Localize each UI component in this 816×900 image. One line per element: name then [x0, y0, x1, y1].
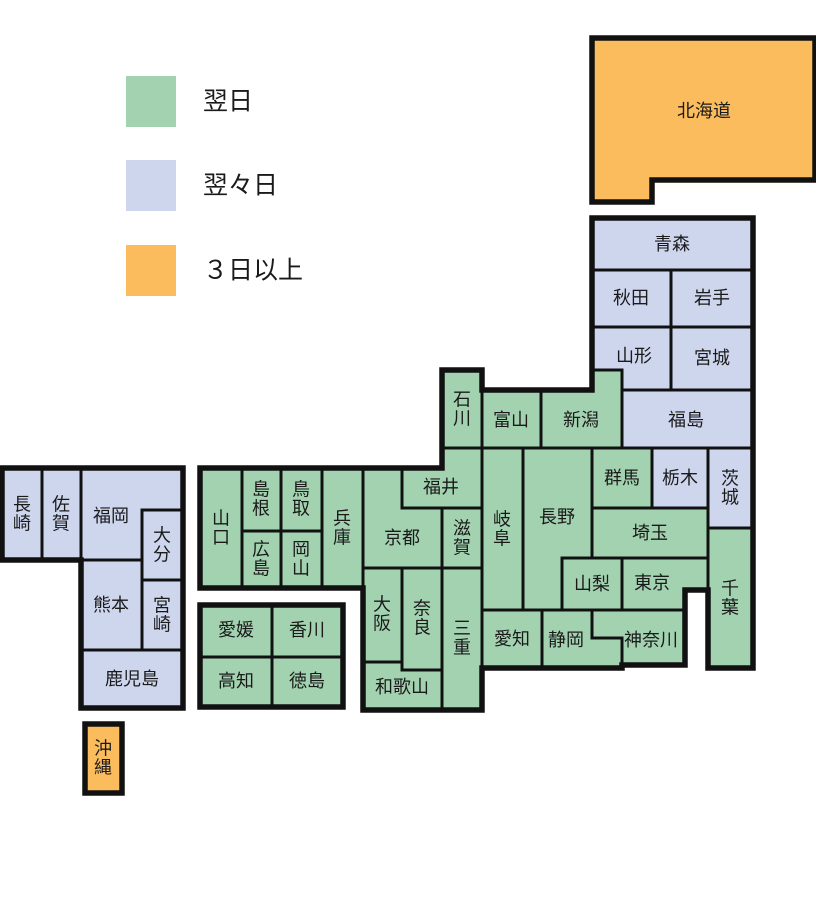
legend-label-three_plus_days: ３日以上 — [203, 257, 303, 285]
prefecture-label-saitama: 埼玉 — [632, 523, 668, 543]
prefecture-tile-niigata — [541, 370, 622, 448]
prefecture-label-miyagi: 宮城 — [694, 348, 730, 368]
prefecture-label-kochi: 高知 — [218, 671, 254, 691]
prefecture-label-nagasaki: 長崎 — [13, 495, 31, 534]
legend-label-next_day: 翌日 — [203, 88, 253, 116]
prefecture-label-kyoto: 京都 — [384, 528, 420, 548]
prefecture-label-ibaraki: 茨城 — [721, 469, 739, 508]
prefecture-label-kanagawa: 神奈川 — [624, 630, 678, 650]
prefecture-label-niigata: 新潟 — [563, 410, 599, 430]
prefecture-label-tokyo: 東京 — [634, 573, 670, 593]
prefecture-label-tottori: 鳥取 — [292, 480, 310, 519]
prefecture-label-kumamoto: 熊本 — [93, 595, 129, 615]
prefecture-label-tokushima: 徳島 — [289, 671, 325, 691]
japan-delivery-map-page: 北海道青森秋田岩手山形宮城福島栃木茨城石川富山新潟福井京都滋賀岐阜長野群馬埼玉山… — [0, 0, 816, 900]
prefecture-label-toyama: 富山 — [493, 410, 529, 430]
prefecture-label-ehime: 愛媛 — [218, 620, 254, 640]
prefecture-label-fukuoka: 福岡 — [93, 506, 129, 526]
prefecture-label-miyazaki: 宮崎 — [153, 596, 171, 635]
prefecture-label-mie: 三重 — [453, 619, 471, 658]
prefecture-label-ishikawa: 石川 — [453, 390, 471, 429]
prefecture-label-osaka: 大阪 — [373, 595, 391, 634]
prefecture-label-shimane: 島根 — [252, 480, 270, 519]
prefecture-label-fukui: 福井 — [423, 477, 459, 497]
prefecture-label-aichi: 愛知 — [494, 629, 530, 649]
japan-delivery-map: 北海道青森秋田岩手山形宮城福島栃木茨城石川富山新潟福井京都滋賀岐阜長野群馬埼玉山… — [0, 0, 816, 900]
prefecture-label-okayama: 岡山 — [292, 540, 310, 579]
legend-swatch-three_plus_days — [126, 245, 176, 296]
prefecture-label-yamanashi: 山梨 — [574, 574, 610, 594]
prefecture-label-kagoshima: 鹿児島 — [105, 669, 159, 689]
prefecture-label-kagawa: 香川 — [289, 620, 325, 640]
prefecture-label-tochigi: 栃木 — [662, 468, 698, 488]
prefecture-label-yamaguchi: 山口 — [212, 509, 230, 548]
prefecture-label-fukushima: 福島 — [668, 410, 704, 430]
prefecture-label-yamagata: 山形 — [616, 346, 652, 366]
prefecture-label-saga: 佐賀 — [52, 495, 70, 534]
prefecture-label-okinawa: 沖縄 — [94, 739, 112, 778]
prefecture-label-akita: 秋田 — [613, 288, 649, 308]
prefecture-label-chiba: 千葉 — [721, 579, 739, 618]
legend-label-next_next_day: 翌々日 — [203, 172, 278, 200]
prefecture-label-iwate: 岩手 — [694, 288, 730, 308]
prefecture-label-hiroshima: 広島 — [252, 540, 270, 579]
prefecture-label-nara: 奈良 — [413, 599, 431, 638]
prefecture-label-oita: 大分 — [153, 526, 171, 565]
prefecture-label-hyogo: 兵庫 — [333, 509, 351, 548]
prefecture-label-shizuoka: 静岡 — [548, 630, 584, 650]
prefecture-label-aomori: 青森 — [654, 234, 690, 254]
prefecture-label-hokkaido: 北海道 — [677, 101, 731, 121]
prefecture-label-gifu: 岐阜 — [493, 510, 511, 549]
prefecture-label-nagano: 長野 — [539, 507, 575, 527]
prefecture-label-gunma: 群馬 — [604, 468, 640, 488]
legend-swatch-next_day — [126, 76, 176, 127]
prefecture-label-wakayama: 和歌山 — [375, 677, 429, 697]
prefecture-label-shiga: 滋賀 — [453, 519, 471, 558]
legend-swatch-next_next_day — [126, 160, 176, 211]
